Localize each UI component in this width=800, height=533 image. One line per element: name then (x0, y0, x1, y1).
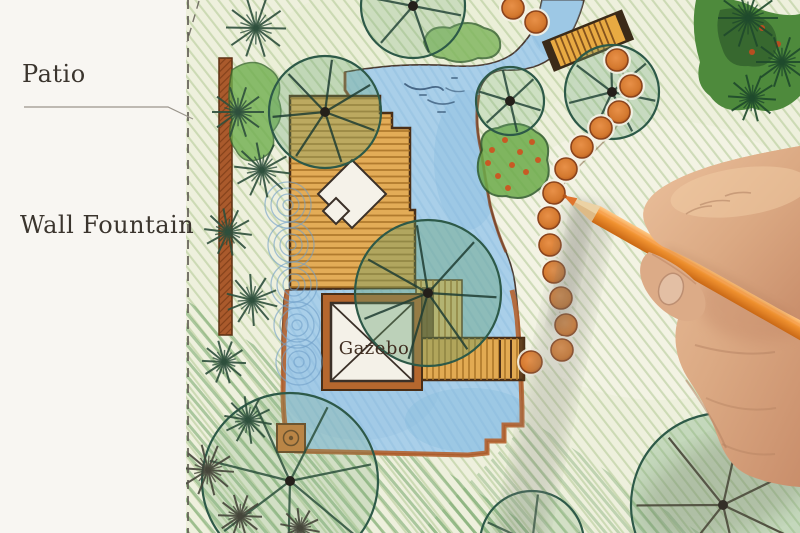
label-patio: Patio (22, 60, 86, 88)
label-gazebo: Gazebo (330, 338, 418, 359)
plan-drawing (0, 0, 800, 533)
label-wall-fountain: Wall Fountain (20, 211, 194, 239)
photo-landscape-plan: Patio Wall Fountain Gazebo (0, 0, 800, 533)
